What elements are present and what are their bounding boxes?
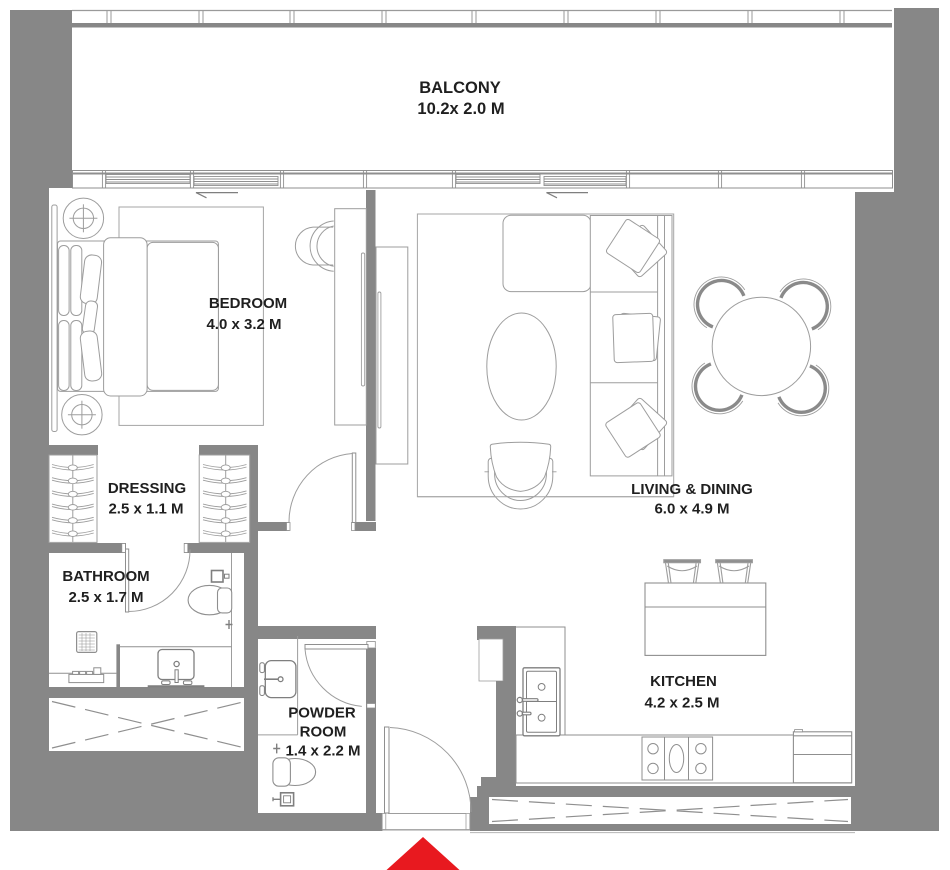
- svg-text:1.4 x 2.2 M: 1.4 x 2.2 M: [285, 743, 360, 760]
- svg-text:2.5 x 1.7 M: 2.5 x 1.7 M: [68, 589, 143, 606]
- svg-text:POWDER: POWDER: [288, 705, 356, 722]
- svg-text:BATHROOM: BATHROOM: [62, 568, 149, 585]
- svg-text:KITCHEN: KITCHEN: [650, 673, 717, 690]
- svg-text:BALCONY: BALCONY: [419, 79, 501, 97]
- svg-text:LIVING & DINING: LIVING & DINING: [631, 481, 753, 498]
- svg-text:BEDROOM: BEDROOM: [209, 295, 287, 312]
- svg-text:DRESSING: DRESSING: [108, 480, 186, 497]
- svg-text:6.0 x 4.9 M: 6.0 x 4.9 M: [654, 501, 729, 518]
- svg-text:2.5 x 1.1 M: 2.5 x 1.1 M: [108, 501, 183, 518]
- svg-text:ROOM: ROOM: [300, 724, 347, 741]
- svg-text:4.2 x 2.5 M: 4.2 x 2.5 M: [644, 695, 719, 712]
- svg-text:4.0 x 3.2 M: 4.0 x 3.2 M: [206, 316, 281, 333]
- svg-text:10.2x 2.0 M: 10.2x 2.0 M: [417, 100, 504, 118]
